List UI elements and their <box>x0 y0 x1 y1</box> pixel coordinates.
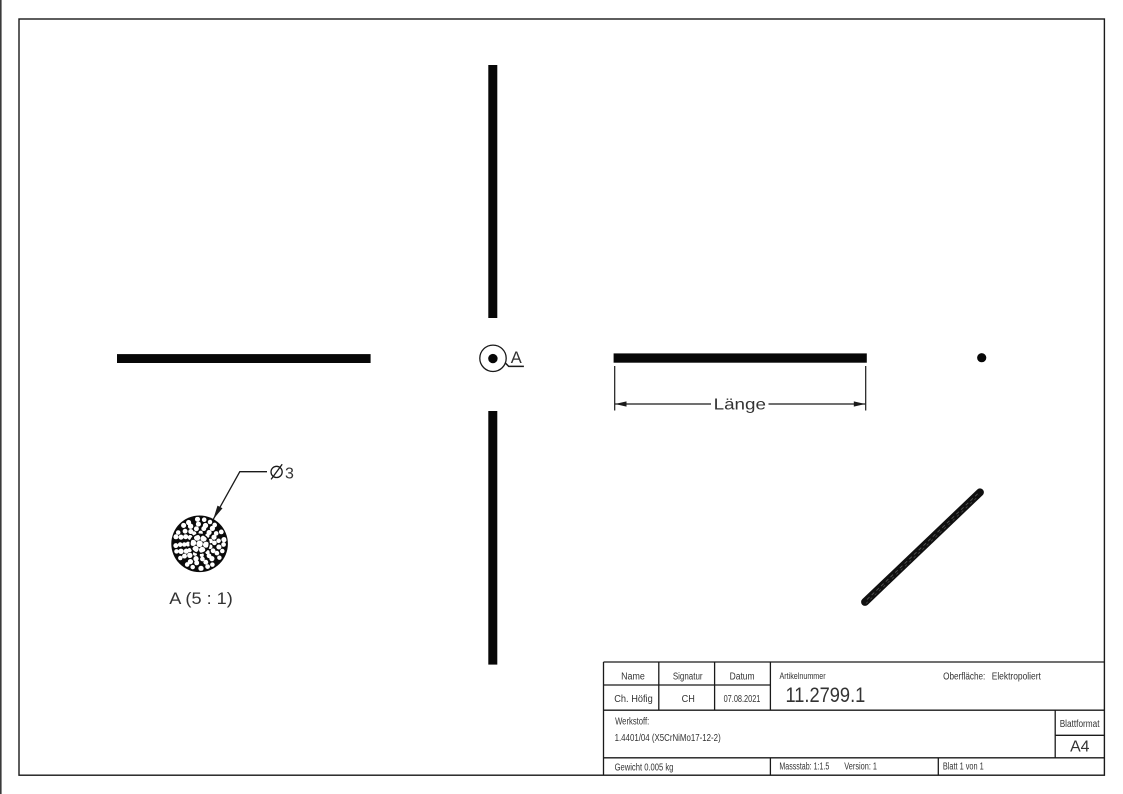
svg-text:Ch. Höfig: Ch. Höfig <box>614 694 653 705</box>
svg-text:1.4401/04 (X5CrNiMo17-12-2): 1.4401/04 (X5CrNiMo17-12-2) <box>615 733 721 744</box>
svg-text:Artikelnummer: Artikelnummer <box>780 671 826 682</box>
svg-text:Elektropoliert: Elektropoliert <box>992 671 1041 682</box>
svg-text:Signatur: Signatur <box>673 671 703 682</box>
svg-text:Länge: Länge <box>714 397 767 414</box>
svg-text:Massstab: 1:1.5: Massstab: 1:1.5 <box>779 762 829 773</box>
svg-text:Werkstoff:: Werkstoff: <box>615 716 649 727</box>
svg-text:CH: CH <box>682 694 695 705</box>
svg-text:Gewicht 0.005 kg: Gewicht 0.005 kg <box>615 763 674 774</box>
svg-text:Datum: Datum <box>730 671 755 682</box>
svg-text:A: A <box>511 349 522 367</box>
svg-text:Version: 1: Version: 1 <box>844 762 877 773</box>
svg-text:Blattformat: Blattformat <box>1060 719 1100 730</box>
svg-text:Name: Name <box>621 671 645 682</box>
svg-text:07.08.2021: 07.08.2021 <box>724 694 761 705</box>
svg-text:11.2799.1: 11.2799.1 <box>786 682 866 707</box>
svg-text:A4: A4 <box>1070 739 1089 756</box>
svg-text:A (5 : 1): A (5 : 1) <box>169 590 233 608</box>
svg-text:Oberfläche:: Oberfläche: <box>943 671 985 682</box>
svg-text:Blatt 1 von 1: Blatt 1 von 1 <box>943 762 984 773</box>
svg-text:3: 3 <box>285 466 294 483</box>
